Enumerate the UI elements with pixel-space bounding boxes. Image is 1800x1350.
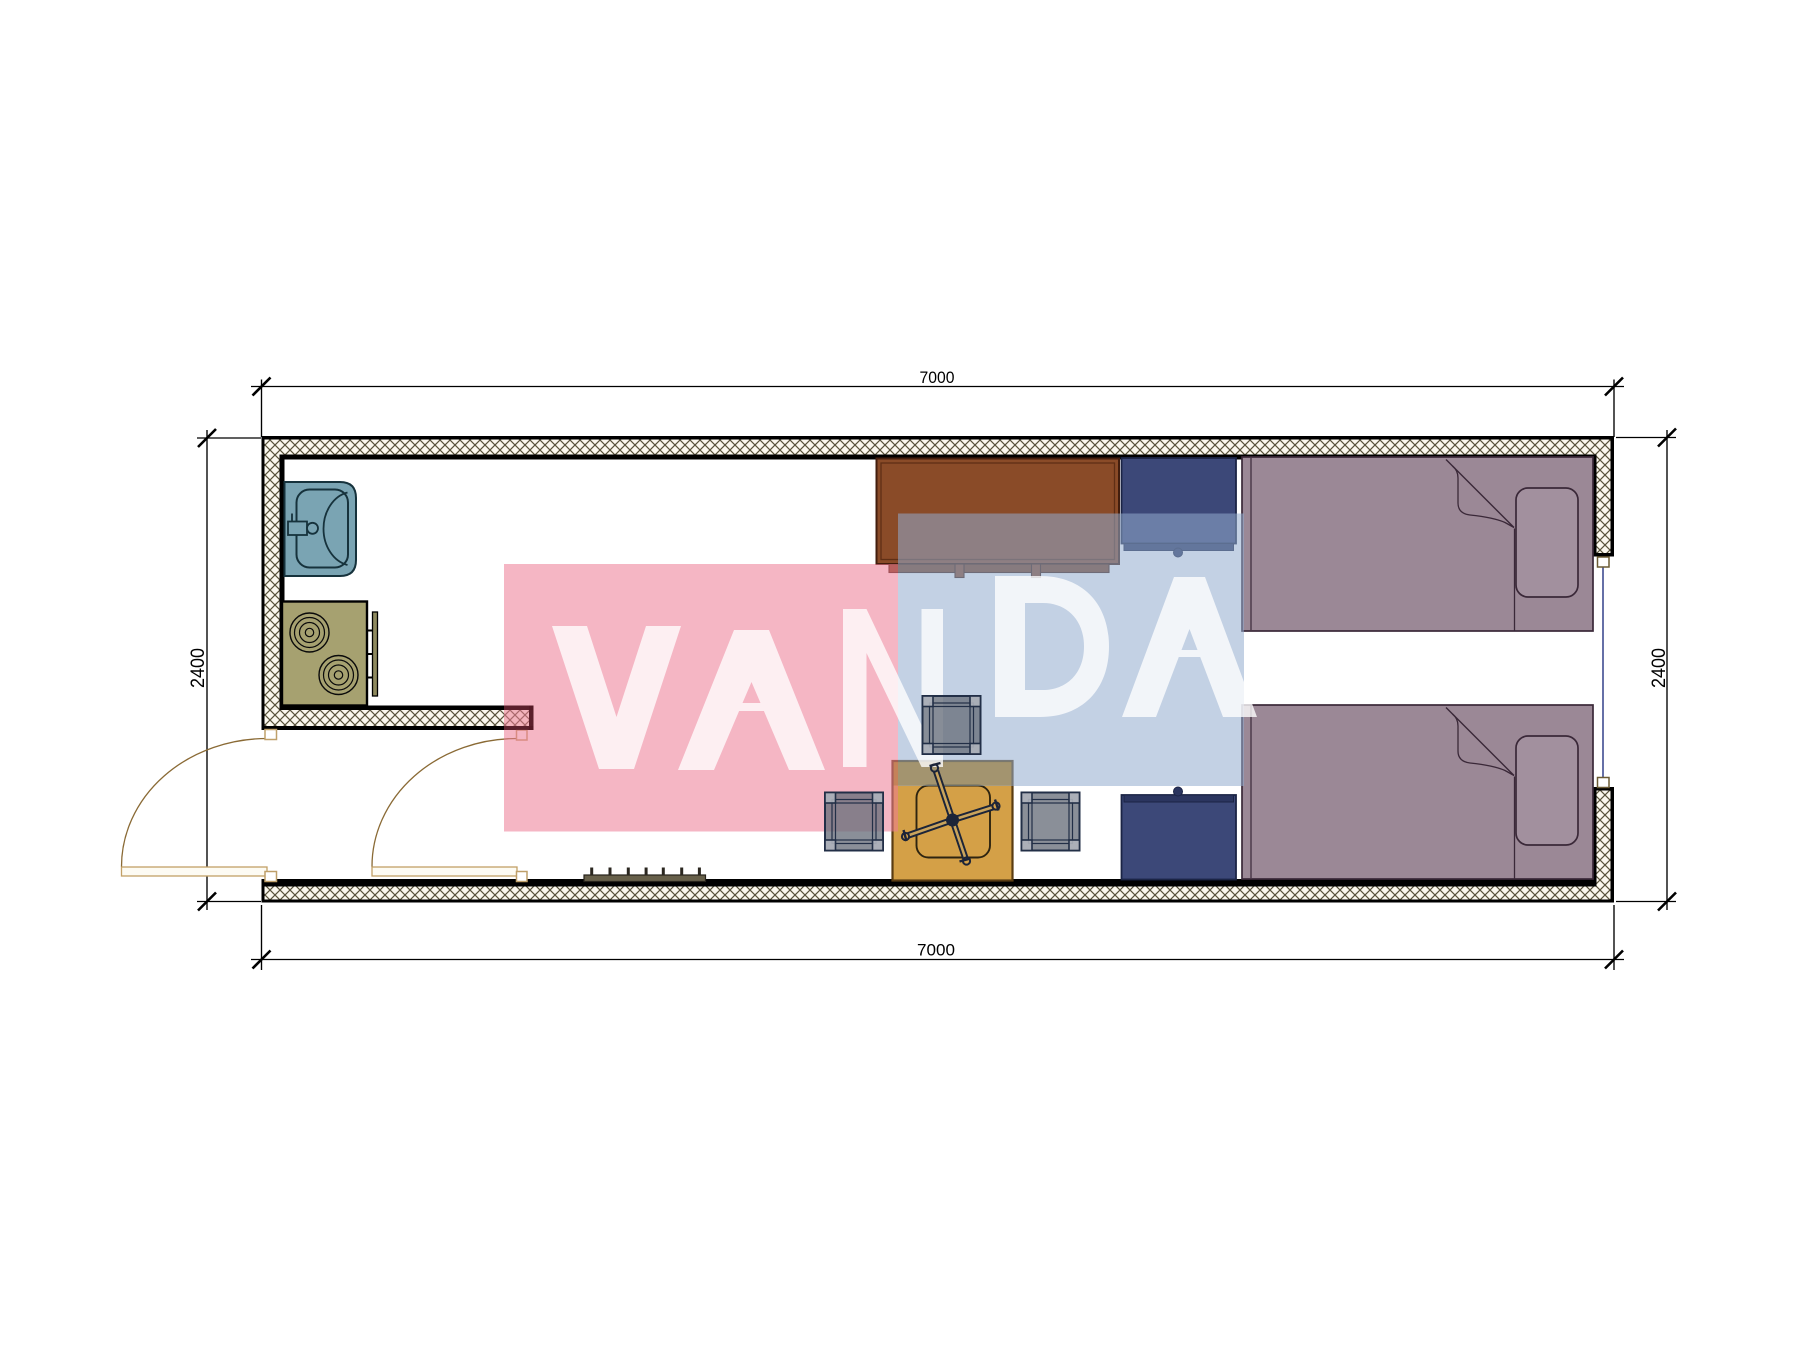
svg-text:2400: 2400	[188, 648, 209, 688]
svg-text:7000: 7000	[917, 942, 955, 960]
svg-text:2400: 2400	[1649, 648, 1670, 688]
svg-text:7000: 7000	[920, 369, 955, 387]
